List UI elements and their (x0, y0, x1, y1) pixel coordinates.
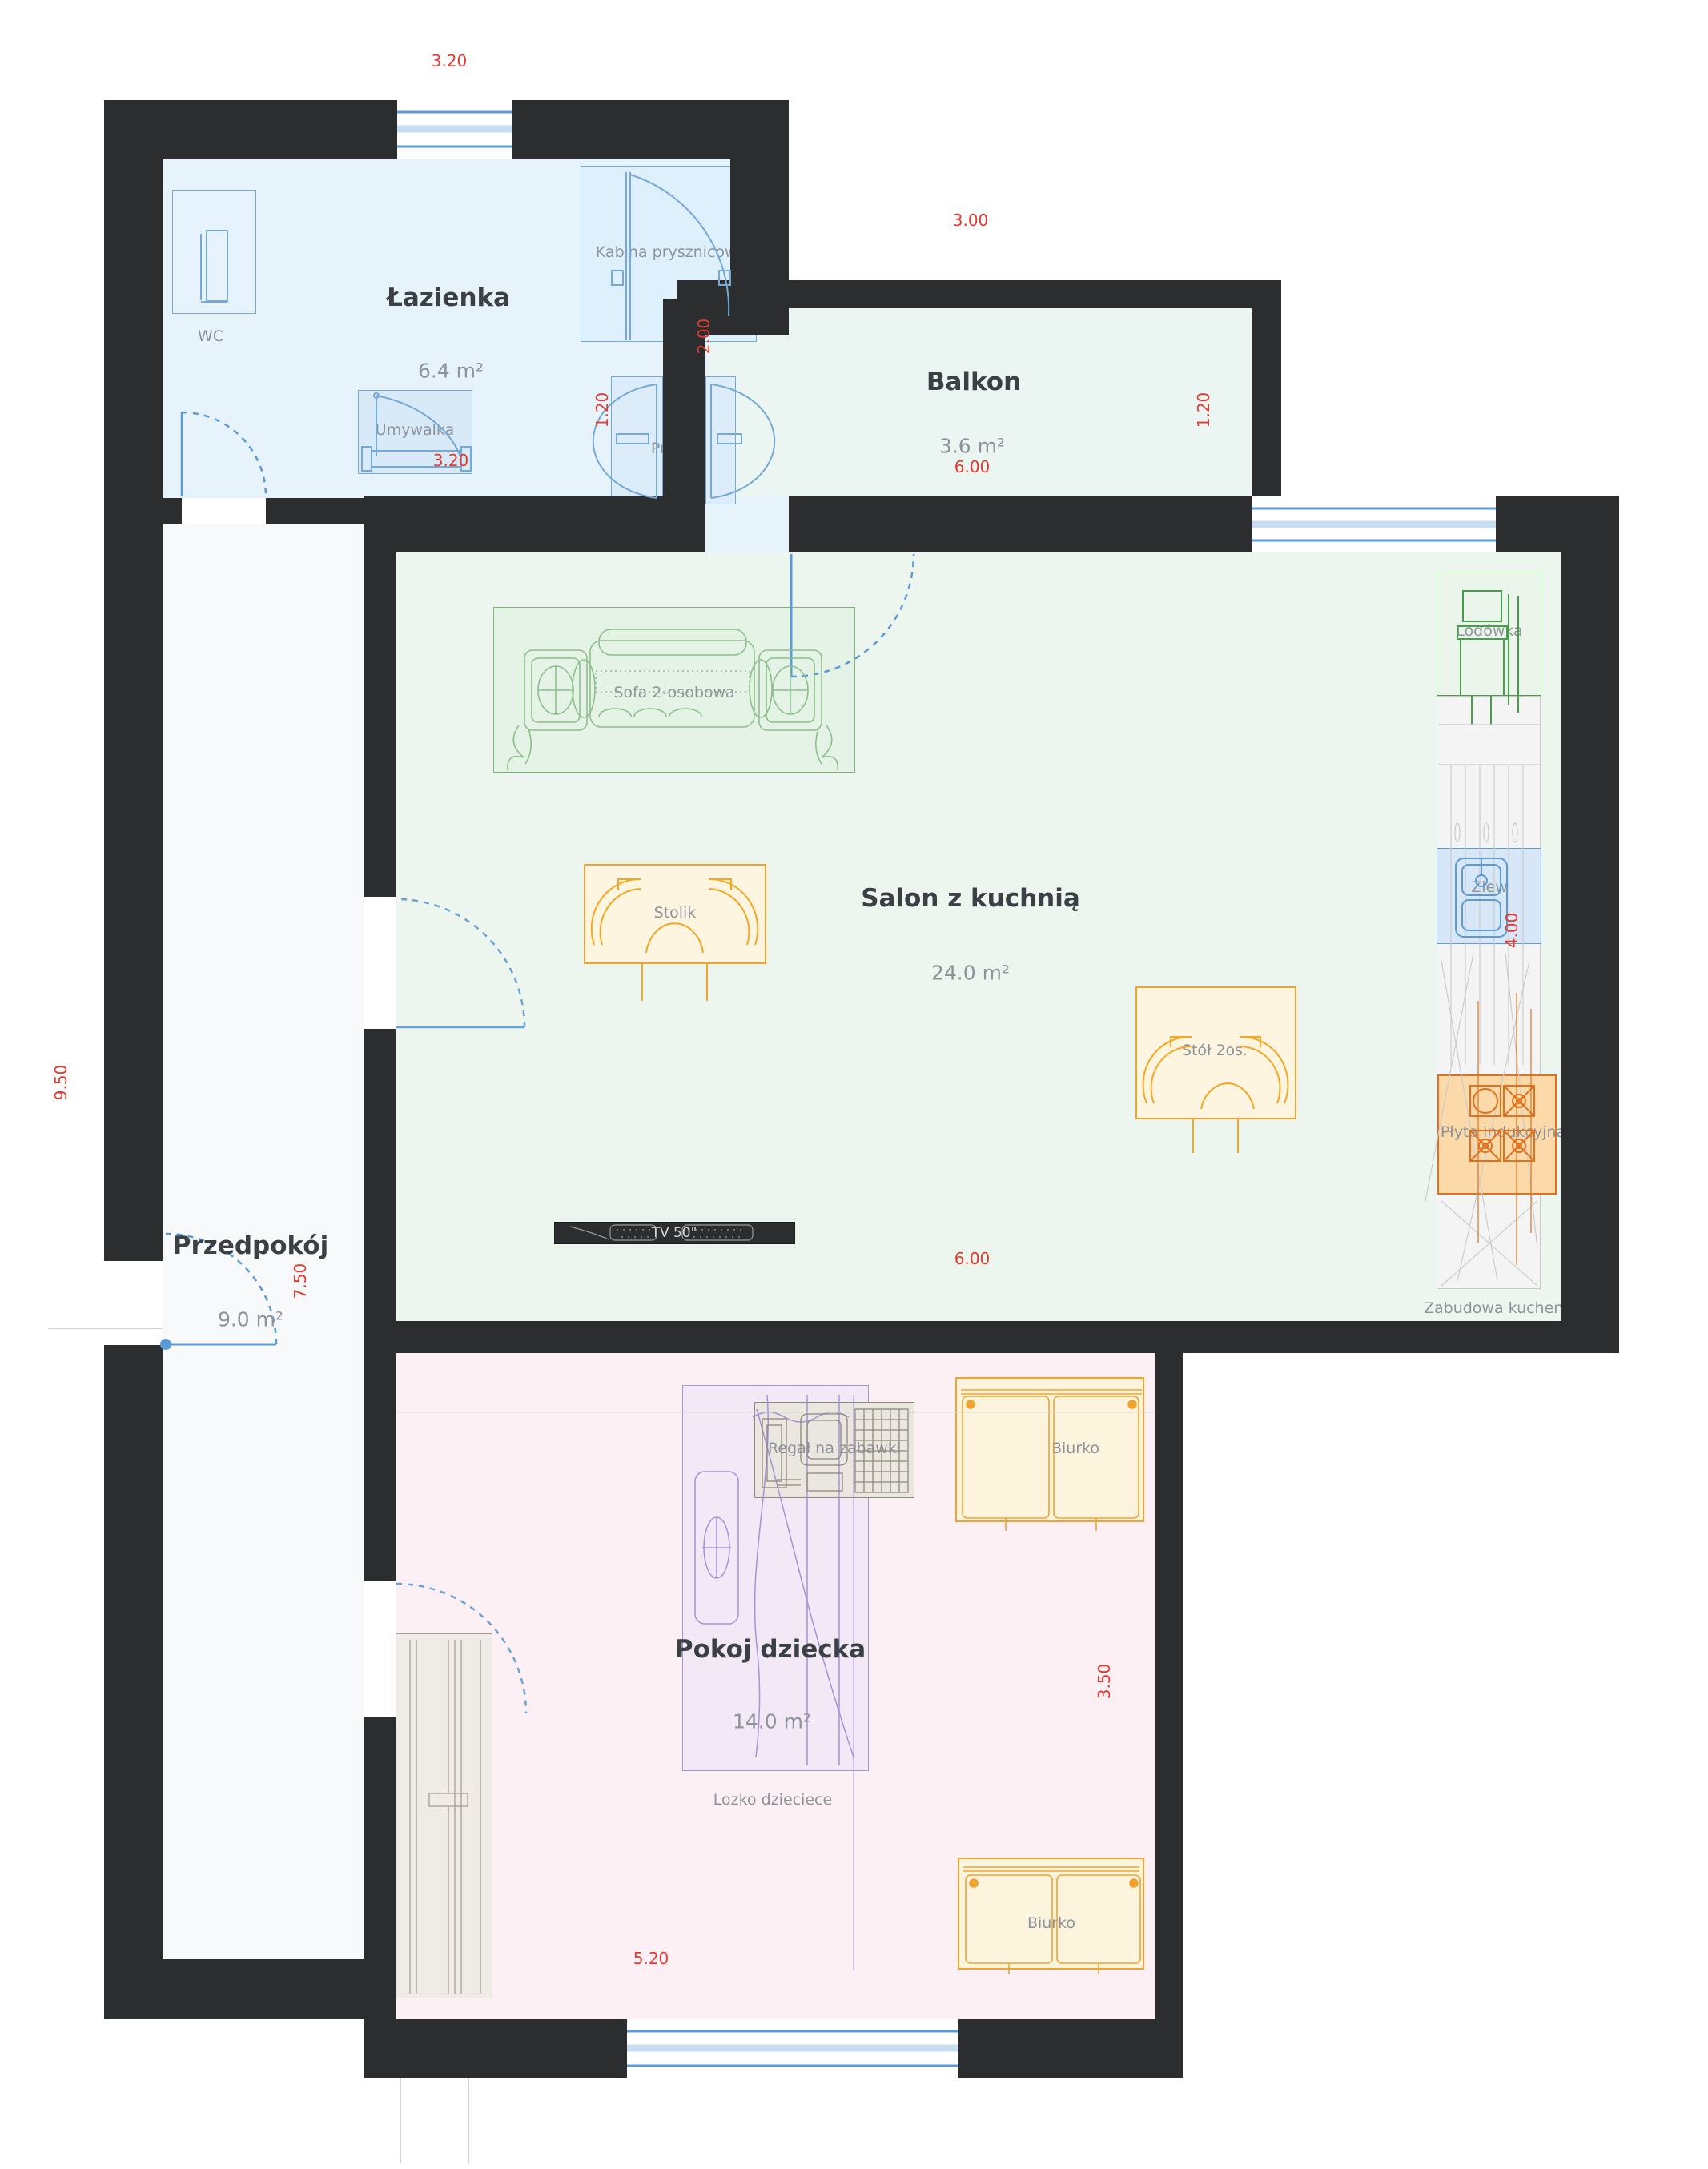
shower-icon (612, 172, 730, 340)
window-salon-top (1252, 508, 1496, 540)
room-title-hall: Przedpokój (173, 1231, 328, 1260)
tv-icon (570, 1225, 753, 1240)
dim-120-left: 1.20 (593, 392, 612, 428)
dim-balc-600: 6.00 (954, 457, 991, 476)
plan-linework (0, 0, 1708, 2169)
dim-120-right: 1.20 (1194, 392, 1213, 428)
door-salon (396, 899, 524, 1027)
room-area-balcony: 3.6 m² (939, 435, 1005, 458)
dim-300: 3.00 (953, 211, 989, 230)
dining-table-icon (1143, 1037, 1288, 1153)
coffee-table-icon (592, 879, 758, 1001)
cabinet-pattern (1425, 725, 1541, 1286)
fridge-icon (1457, 591, 1518, 725)
room-area-salon: 24.0 m² (931, 962, 1010, 985)
room-area-bathroom: 6.4 m² (418, 359, 484, 383)
washer-icon (593, 384, 774, 498)
dim-350: 3.50 (1095, 1664, 1114, 1700)
guide-lines (48, 1328, 1155, 2163)
dim-top-320: 3.20 (432, 51, 468, 70)
toy-shelf-icon (762, 1409, 908, 1492)
room-title-balcony: Balkon (926, 368, 1021, 396)
room-title-salon: Salon z kuchnią (861, 884, 1080, 913)
room-area-kidsroom: 14.0 m² (733, 1710, 811, 1733)
room-title-kidsroom: Pokoj dziecka (675, 1635, 866, 1664)
dim-950: 9.50 (51, 1065, 70, 1101)
floor-plan: WC Kabina prysznicowa Umywalka Pralka So… (0, 0, 1708, 2169)
room-title-bathroom: Łazienka (387, 283, 510, 312)
dim-salon-600: 6.00 (954, 1249, 991, 1268)
dim-200: 2.00 (694, 319, 713, 355)
door-bathroom (182, 412, 266, 496)
room-area-hall: 9.0 m² (218, 1308, 283, 1332)
wardrobe-icon (410, 1640, 480, 1994)
desk-1-icon (961, 1390, 1142, 1531)
dim-bath-320: 3.20 (433, 451, 469, 470)
dim-400: 4.00 (1502, 913, 1521, 949)
desk-2-icon (963, 1867, 1140, 1974)
kitchen-sink-icon (1456, 858, 1507, 937)
wc-icon (201, 231, 227, 302)
window-kidsroom-bottom (627, 2031, 958, 2066)
window-bathroom-top (397, 112, 512, 147)
dim-520: 5.20 (633, 1949, 669, 1968)
sofa-icon (508, 629, 838, 770)
dim-750: 7.50 (291, 1263, 310, 1299)
